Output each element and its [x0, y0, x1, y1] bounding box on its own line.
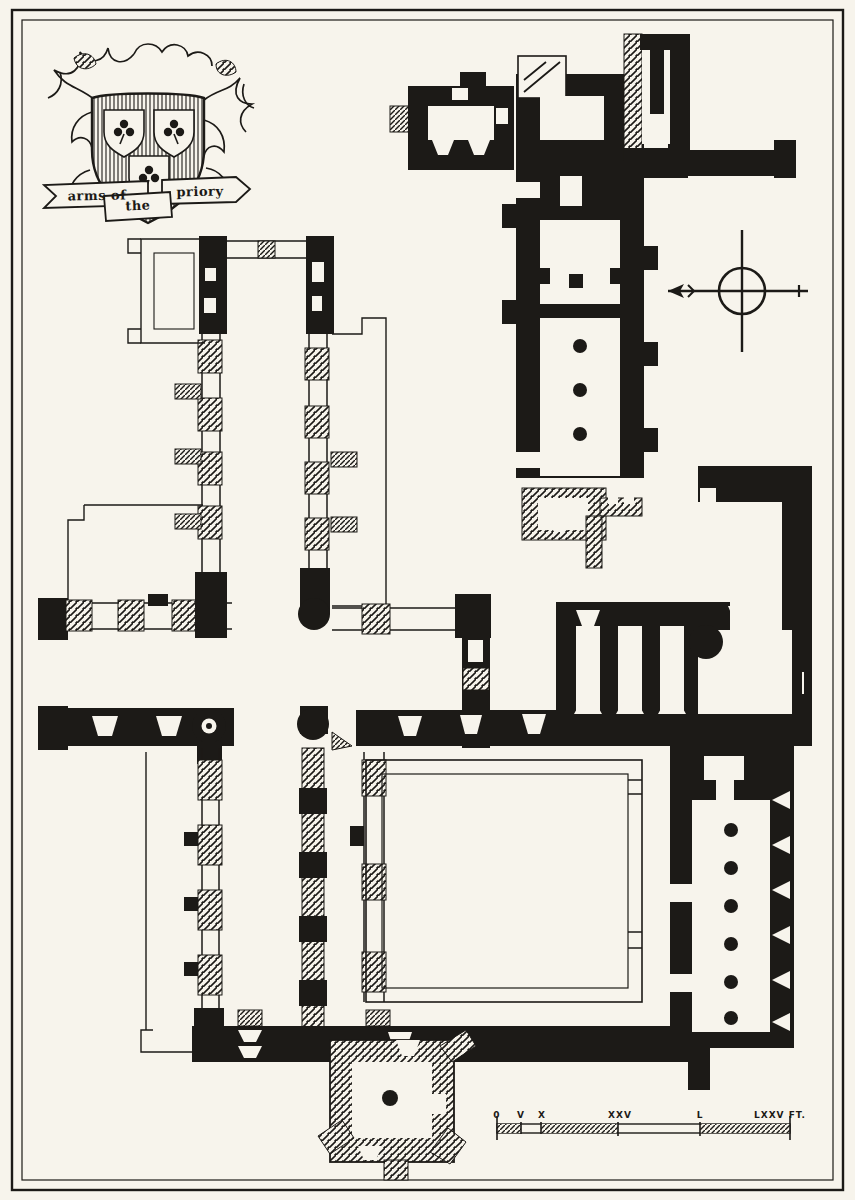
north-chapel-outline	[128, 239, 205, 343]
tower-stair-wall	[650, 50, 664, 114]
arcade-pier	[198, 955, 222, 995]
arcade-pier-node	[299, 980, 327, 1006]
mantling-leaf	[54, 48, 134, 100]
doorway-mark	[516, 452, 540, 468]
banner-text-left: arms of	[67, 187, 127, 203]
arcade-pier	[198, 340, 222, 373]
tower-east-wall	[668, 34, 690, 160]
crossing-ne-pier-drum	[298, 598, 330, 630]
tower-wall-hatched	[624, 34, 642, 160]
arcade-pier	[118, 600, 144, 631]
wall-stub	[460, 72, 486, 88]
garth-feature-ticks	[628, 780, 642, 948]
scale-segment	[541, 1124, 618, 1133]
arcade-pier	[198, 398, 222, 431]
column-base	[573, 339, 587, 353]
motto-banner: arms of the priory	[44, 177, 250, 221]
drain-wall-hatched	[586, 516, 602, 568]
arcade-pier	[305, 406, 329, 438]
buttress-stub	[184, 962, 198, 976]
arcade-pier	[172, 600, 198, 631]
scale-label-x: X	[538, 1110, 546, 1120]
buttress-stub	[238, 1010, 262, 1026]
scale-segment	[497, 1124, 521, 1133]
scale-segment	[700, 1124, 790, 1133]
north-arrow-compass-icon	[668, 230, 808, 352]
pier-base	[382, 1090, 398, 1106]
drain-wall-hatched	[600, 498, 642, 516]
room-interior	[540, 96, 604, 140]
crossing-nw-pier	[195, 572, 227, 638]
arcade-pier	[198, 890, 222, 930]
room-interior	[428, 106, 494, 140]
room-interior	[540, 220, 620, 304]
transept-north-wall-east	[332, 608, 462, 630]
buttress-stub	[384, 1160, 408, 1180]
stair-triangle	[332, 732, 352, 750]
buttress	[644, 428, 658, 452]
arcade-pier	[305, 462, 329, 494]
wall-recess	[205, 268, 216, 281]
hall-north-recess	[704, 756, 744, 780]
hall-north-recess-step	[716, 780, 734, 806]
compass-crosshair	[668, 230, 808, 352]
wall-notch	[608, 494, 618, 504]
buttress-stub	[175, 449, 201, 464]
doorway-mark	[560, 176, 582, 206]
arcade-pier-node	[299, 916, 327, 942]
wall-stub-hatched	[390, 106, 410, 132]
scale-label-end: LXXV FT.	[754, 1110, 806, 1120]
scale-bar: 0 V X XXV L LXXV FT.	[493, 1110, 806, 1140]
coat-of-arms: arms of the priory	[44, 44, 254, 223]
tower-base	[624, 148, 688, 178]
round-stair-pier-newel	[206, 723, 212, 729]
buttress-stub	[175, 384, 201, 399]
wall-recess	[312, 296, 322, 311]
banner-text-center: the	[125, 198, 151, 214]
wall-notch	[700, 488, 716, 502]
buttress-stub	[184, 832, 198, 846]
doorway-mark	[516, 182, 540, 198]
scale-label-0: 0	[493, 1110, 500, 1120]
plan-engraving: arms of the priory	[0, 0, 855, 1200]
wall-recess	[204, 298, 216, 313]
buttress	[644, 246, 658, 270]
doorway-mark	[496, 108, 508, 124]
buttress	[644, 342, 658, 366]
buttress-stub	[175, 514, 201, 529]
wall-segment-hatched	[258, 241, 275, 258]
buttress-stub	[184, 897, 198, 911]
buttress-stub	[350, 826, 364, 846]
buttress-stub	[331, 452, 357, 467]
doorway-mark	[452, 88, 468, 100]
buttress-stub	[366, 1010, 390, 1026]
doorway-mark	[670, 974, 692, 992]
cloister-garth-outer	[366, 760, 642, 1002]
buttress	[502, 300, 516, 324]
arcade-pier-node	[299, 852, 327, 878]
mantling-leaf-hatched	[216, 60, 236, 75]
doorway-mark	[468, 640, 483, 662]
priory-plan-plate: arms of the priory	[0, 0, 855, 1200]
wall-segment-hatched	[463, 668, 489, 690]
scale-label-v: V	[517, 1110, 525, 1120]
arcade-pier	[362, 604, 390, 634]
arcade-pier	[66, 600, 92, 631]
precinct-wall-end	[774, 140, 796, 178]
arcade-pier	[198, 760, 222, 800]
crossing-se-pier-drum	[297, 708, 329, 740]
choir-ne-pier-mass	[306, 236, 334, 334]
doorway-mark	[670, 884, 692, 902]
respond-pier	[540, 268, 550, 284]
respond-pier	[610, 268, 620, 284]
arcade-pier	[305, 348, 329, 380]
pier-base	[569, 274, 583, 288]
arcade-pier-node	[299, 788, 327, 814]
mantling-leaf	[204, 120, 224, 156]
cloister-garth-inner	[382, 774, 628, 988]
arcade-pier	[198, 825, 222, 865]
transept-west-end-pier	[38, 598, 68, 640]
wall-stub	[148, 594, 168, 606]
southwest-tower	[318, 1030, 476, 1180]
buttress	[502, 204, 516, 228]
church-choir	[128, 236, 386, 606]
wall-notch	[624, 494, 634, 504]
wall-stub	[688, 1048, 710, 1090]
mantling-leaf	[72, 112, 92, 148]
transept-ne-corner-pier	[455, 594, 491, 638]
banner-text-right: priory	[176, 184, 223, 200]
scale-label-xxv: XXV	[608, 1110, 632, 1120]
church-nave	[141, 748, 702, 1062]
scale-label-l: L	[697, 1110, 704, 1120]
precinct-wall	[688, 150, 776, 176]
choir-nw-pier-mass	[199, 236, 227, 334]
column-base	[573, 427, 587, 441]
wall-recess	[428, 1094, 446, 1114]
arcade-pier	[305, 518, 329, 550]
arcade-pier	[198, 452, 222, 485]
buttress-stub	[331, 517, 357, 532]
mantling-leaf	[134, 44, 212, 66]
wall-recess	[312, 262, 324, 282]
column-base	[573, 383, 587, 397]
stair-vice	[689, 625, 723, 659]
arcade-pier	[198, 506, 222, 539]
